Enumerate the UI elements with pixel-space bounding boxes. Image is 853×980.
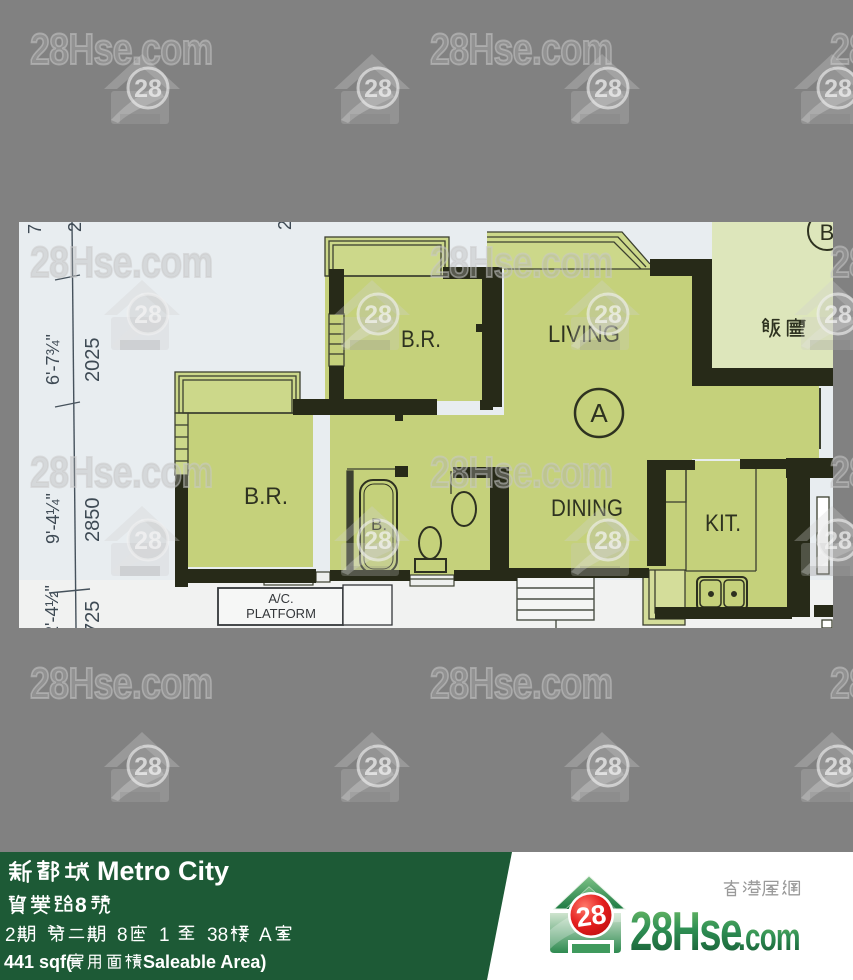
svg-text:28Hse: 28Hse: [630, 901, 742, 963]
svg-text:A: A: [259, 925, 272, 946]
svg-text:6'-7¾": 6'-7¾": [43, 334, 63, 385]
svg-text:B.R.: B.R.: [244, 483, 288, 510]
svg-text:28: 28: [574, 899, 608, 933]
svg-text:2'-4½": 2'-4½": [42, 585, 62, 628]
svg-text:Metro City: Metro City: [97, 856, 229, 886]
svg-text:38: 38: [207, 925, 228, 946]
svg-text:1: 1: [159, 925, 170, 946]
svg-text:Saleable Area): Saleable Area): [143, 952, 266, 972]
svg-text:A: A: [590, 398, 608, 428]
svg-text:441 sqf(: 441 sqf(: [4, 952, 72, 972]
svg-text:725: 725: [82, 601, 104, 628]
svg-text:8: 8: [117, 925, 128, 946]
svg-text:PLATFORM: PLATFORM: [246, 606, 316, 621]
svg-text:KIT.: KIT.: [705, 510, 741, 537]
svg-text:2: 2: [65, 222, 85, 232]
svg-text:.com: .com: [738, 917, 800, 959]
svg-text:9'-4¼": 9'-4¼": [43, 493, 63, 544]
svg-text:8: 8: [75, 894, 87, 917]
svg-text:A/C.: A/C.: [268, 591, 293, 606]
svg-text:2: 2: [275, 222, 295, 230]
svg-text:7: 7: [25, 224, 45, 234]
svg-text:2: 2: [5, 925, 16, 946]
svg-text:2025: 2025: [82, 338, 104, 383]
svg-text:2850: 2850: [82, 498, 104, 543]
